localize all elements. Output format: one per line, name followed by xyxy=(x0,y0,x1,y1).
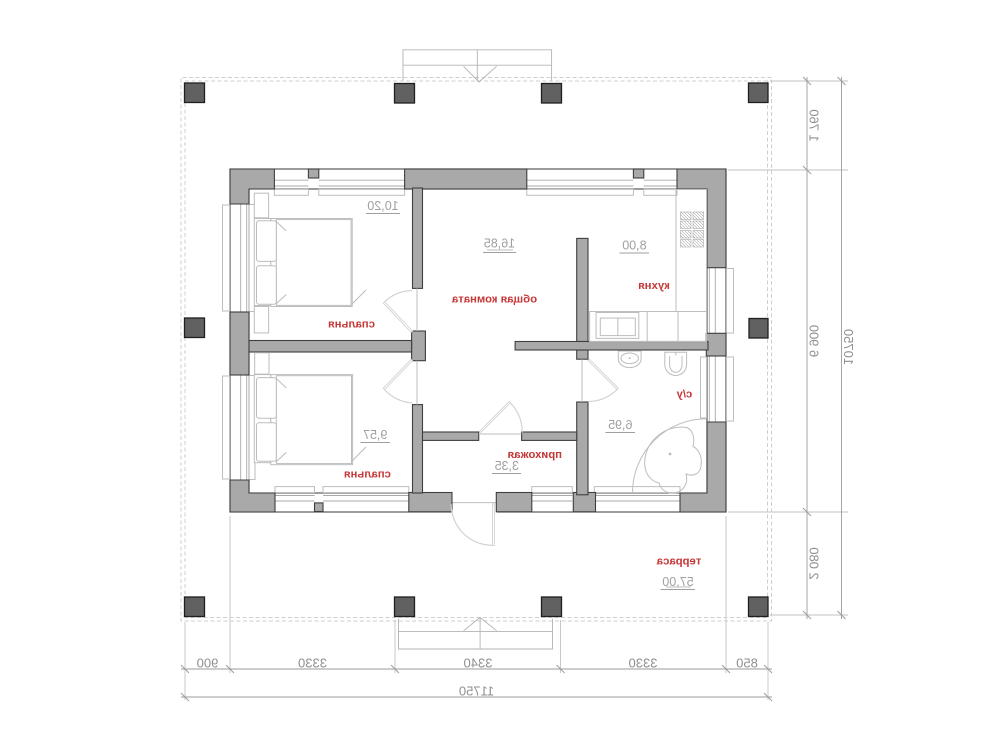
svg-text:спальня: спальня xyxy=(344,469,391,481)
svg-text:1 760: 1 760 xyxy=(807,109,822,142)
svg-text:3330: 3330 xyxy=(298,656,327,671)
svg-text:кухня: кухня xyxy=(638,280,670,292)
svg-text:9,57: 9,57 xyxy=(363,428,387,442)
svg-text:общая комната: общая комната xyxy=(451,294,537,306)
svg-text:11750: 11750 xyxy=(459,684,494,699)
svg-text:3340: 3340 xyxy=(464,656,493,671)
svg-text:900: 900 xyxy=(197,656,219,671)
svg-text:6,95: 6,95 xyxy=(608,418,632,432)
svg-text:3,35: 3,35 xyxy=(495,459,519,473)
svg-text:10,20: 10,20 xyxy=(367,199,398,213)
svg-text:2 080: 2 080 xyxy=(807,547,822,580)
svg-text:16,85: 16,85 xyxy=(484,237,515,251)
svg-text:3330: 3330 xyxy=(629,656,658,671)
svg-text:10750: 10750 xyxy=(841,329,856,365)
svg-text:с/у: с/у xyxy=(676,389,692,401)
svg-text:спальня: спальня xyxy=(328,319,375,331)
svg-text:терраса: терраса xyxy=(656,556,701,568)
svg-text:850: 850 xyxy=(736,656,758,671)
svg-text:8,00: 8,00 xyxy=(622,239,646,253)
svg-text:6 900: 6 900 xyxy=(807,325,822,358)
